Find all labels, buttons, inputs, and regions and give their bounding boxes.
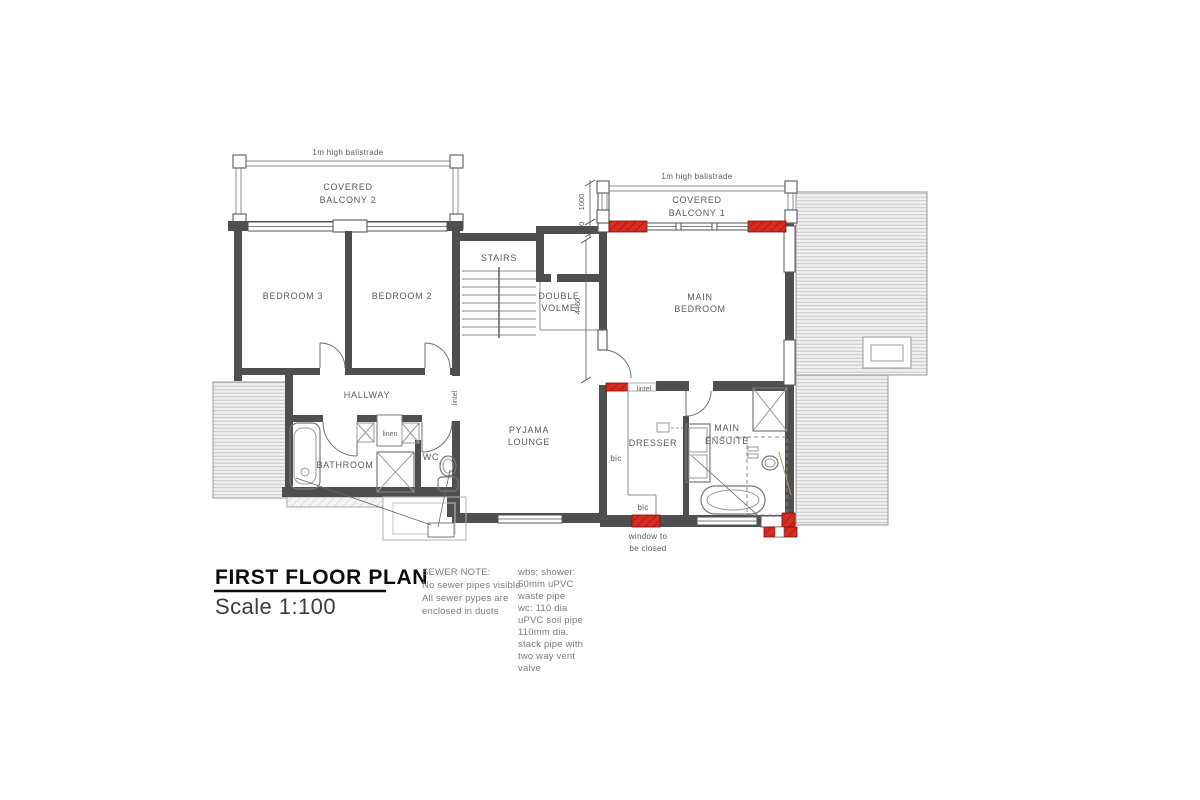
stack-pipe-icon	[761, 516, 782, 527]
title-block: FIRST FLOOR PLAN Scale 1:100	[214, 566, 428, 619]
dresser-unit-icon	[657, 423, 683, 432]
wardrobe-icon	[686, 424, 710, 482]
covered-balcony2-label2: BALCONY 2	[320, 195, 377, 205]
balustrade-rail-right	[453, 168, 458, 214]
window-closed-label2: be closed	[629, 544, 666, 553]
covered-balcony1-label: COVERED	[672, 195, 722, 205]
stairs	[462, 267, 536, 338]
balustrade-rail-left	[236, 168, 241, 214]
dim-balcony-height: 1000	[577, 194, 586, 211]
balustrade-rail-left	[602, 193, 607, 210]
new-lintel-highlight	[606, 383, 628, 391]
double-volume-label: DOUBLE	[538, 291, 579, 301]
left-roof	[213, 382, 287, 498]
window-pivot	[712, 223, 717, 230]
floor-plan-canvas: 1000 230 4460 1m high balistrade COVERED…	[0, 0, 1200, 800]
dresser-door	[686, 391, 711, 416]
plan-title: FIRST FLOOR PLAN	[215, 566, 428, 589]
plumbing-note-line: wc: 110 dia	[517, 603, 568, 614]
balustrade-rail-right	[788, 193, 793, 210]
stack-pipe-icon	[428, 523, 454, 537]
bic-side-label: bic	[610, 454, 621, 463]
sewer-note-line: enclosed in ducts	[422, 606, 499, 617]
linen-label: linen	[383, 431, 398, 438]
balcony-post	[597, 210, 609, 223]
balustrade2-label: 1m high balistrade	[312, 148, 383, 157]
double-volume-label2: VOLME	[541, 303, 576, 313]
lintel-bedroom-label: lintel	[637, 386, 652, 393]
balcony-post	[597, 181, 609, 193]
covered-balcony-2	[233, 155, 463, 229]
covered-balcony1-label2: BALCONY 1	[669, 208, 726, 218]
covered-balcony-1	[597, 181, 797, 232]
window-closed-label: window to	[628, 532, 668, 541]
bedroom3-door	[320, 343, 345, 368]
main-ensuite-label: MAIN	[714, 423, 739, 433]
plumbing-note-line: stack pipe with	[518, 639, 583, 650]
window-to-close-highlight	[632, 515, 660, 527]
balustrade1-label: 1m high balistrade	[661, 172, 732, 181]
plumbing-note-line: two way vent	[518, 651, 575, 662]
main-bedroom-door	[603, 350, 631, 378]
plumbing-note-line: wbs; shower:	[517, 567, 576, 578]
small-annotations: linen lintel lintel bic bic window to be…	[383, 386, 668, 553]
balcony-post	[233, 155, 246, 168]
plumbing-note-line: valve	[518, 663, 541, 674]
plumbing-note-line: waste pipe	[517, 591, 565, 602]
floor-plan-page: 1000 230 4460 1m high balistrade COVERED…	[0, 0, 1200, 800]
shower-icon	[377, 452, 414, 492]
plumbing-note-line: 110mm dia.	[518, 627, 569, 638]
balustrade-rail	[609, 186, 785, 191]
main-bedroom-label: MAIN	[687, 292, 712, 302]
main-bedroom-label2: BEDROOM	[674, 304, 726, 314]
bathroom-label: BATHROOM	[316, 460, 373, 470]
ensuite-bathtub-icon	[701, 486, 765, 514]
window-mullion	[333, 220, 367, 232]
wc-door	[422, 422, 452, 452]
new-wall-highlight	[748, 221, 786, 232]
sewer-note-line: All sewer pypes are	[422, 593, 509, 604]
vanity-icon	[402, 423, 419, 443]
main-ensuite-label2: ENSUITE	[705, 436, 749, 446]
wc-label: WC	[423, 452, 439, 462]
plan-scale: Scale 1:100	[215, 594, 336, 619]
new-wall-highlight	[782, 513, 795, 527]
bathtub-icon	[290, 423, 320, 489]
new-wall-highlight	[609, 221, 647, 232]
dresser-label: DRESSER	[629, 438, 678, 448]
plumbing-note-line: 50mm uPVC	[518, 579, 574, 590]
ensuite-shower-icon	[753, 388, 787, 431]
sewer-note: SEWER NOTE: No sewer pipes visible All s…	[422, 567, 521, 617]
room-labels: 1m high balistrade COVERED BALCONY 2 1m …	[263, 148, 749, 470]
sewer-note-heading: SEWER NOTE:	[422, 567, 491, 578]
bathroom-door	[323, 422, 357, 456]
lintel-hallway-label: lintel	[452, 390, 459, 405]
sewer-note-line: No sewer pipes visible	[422, 580, 521, 591]
plumbing-note: wbs; shower: 50mm uPVC waste pipe wc: 11…	[517, 567, 583, 674]
vanity-icon	[357, 423, 374, 442]
bic-bottom-label: bic	[637, 503, 648, 512]
covered-balcony2-label: COVERED	[323, 182, 373, 192]
window	[784, 226, 795, 272]
window	[784, 340, 795, 385]
ensuite-toilet-icon	[748, 447, 778, 470]
plumbing-note-line: uPVC soil pipe	[518, 615, 583, 626]
stairs-label: STAIRS	[481, 253, 517, 263]
skylight-icon	[863, 337, 911, 368]
balustrade-rail	[241, 161, 452, 166]
hallway-label: HALLWAY	[344, 390, 390, 400]
bedroom2-door	[425, 343, 450, 368]
ensuite-screen	[707, 437, 787, 515]
main-bedroom-door-leaf	[598, 330, 607, 350]
window-pivot	[676, 223, 681, 230]
pyjama-lounge-label2: LOUNGE	[508, 437, 550, 447]
balcony-post	[450, 155, 463, 168]
balcony-post	[785, 210, 797, 223]
pyjama-lounge-label: PYJAMA	[509, 425, 549, 435]
dim-wall-thickness: 230	[577, 222, 586, 235]
lower-roof-strip	[287, 497, 383, 507]
balcony-post	[785, 181, 797, 193]
bedroom2-label: BEDROOM 2	[372, 291, 433, 301]
bedroom3-label: BEDROOM 3	[263, 291, 324, 301]
right-roof-lower	[796, 375, 888, 525]
